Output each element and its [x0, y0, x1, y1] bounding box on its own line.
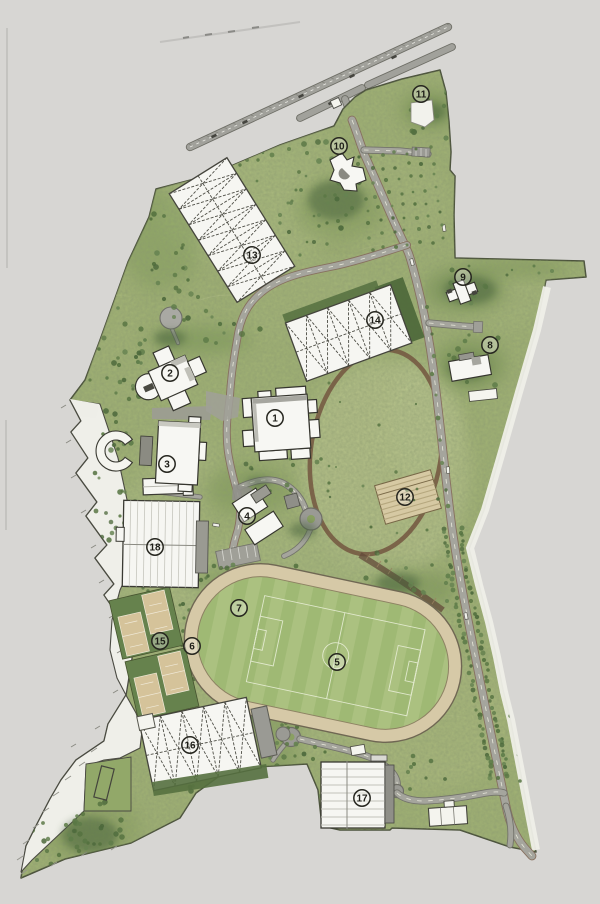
svg-text:16: 16 — [184, 740, 196, 751]
svg-text:10: 10 — [333, 141, 345, 152]
svg-text:7: 7 — [236, 603, 242, 614]
svg-text:11: 11 — [416, 89, 427, 100]
svg-text:3: 3 — [164, 459, 170, 470]
svg-text:15: 15 — [154, 636, 166, 647]
svg-text:1: 1 — [272, 413, 278, 424]
svg-text:12: 12 — [399, 492, 411, 503]
svg-text:13: 13 — [246, 250, 258, 261]
svg-text:6: 6 — [189, 641, 195, 652]
svg-text:14: 14 — [369, 315, 381, 326]
svg-text:18: 18 — [149, 542, 161, 553]
svg-text:8: 8 — [487, 340, 493, 351]
svg-text:2: 2 — [167, 368, 173, 379]
svg-text:17: 17 — [356, 793, 368, 804]
svg-text:9: 9 — [460, 272, 466, 283]
svg-text:5: 5 — [334, 657, 340, 668]
svg-text:4: 4 — [244, 511, 250, 522]
